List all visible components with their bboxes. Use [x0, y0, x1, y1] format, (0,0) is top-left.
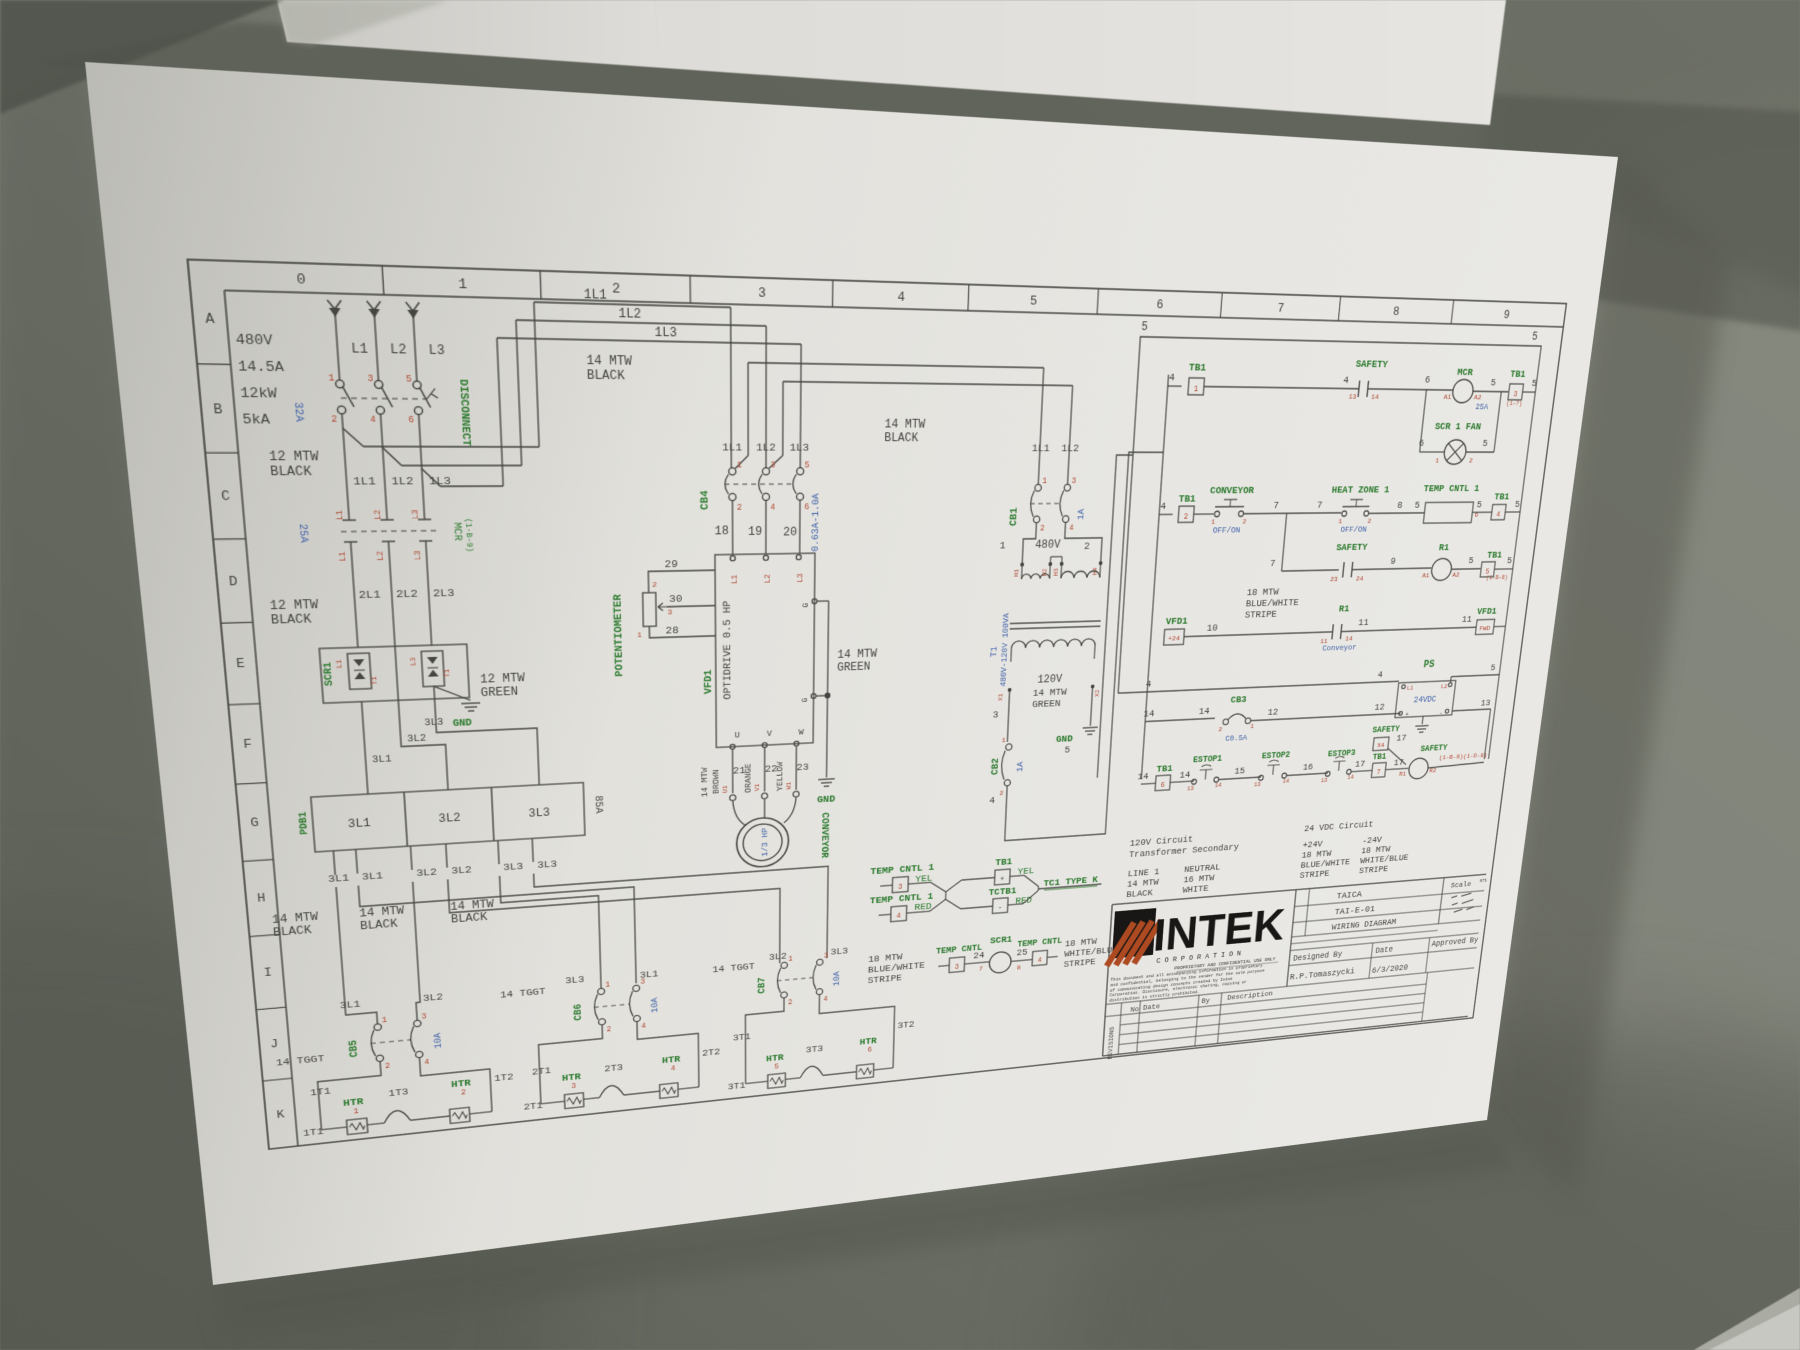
- svg-text:22: 22: [765, 764, 777, 776]
- svg-text:VFD1: VFD1: [703, 669, 715, 694]
- svg-text:1: 1: [605, 981, 610, 989]
- svg-text:1T1: 1T1: [310, 1086, 331, 1099]
- svg-text:CONVEYOR: CONVEYOR: [1210, 486, 1255, 497]
- svg-text:3L1: 3L1: [362, 871, 384, 884]
- svg-text:1L2: 1L2: [756, 442, 776, 454]
- svg-text:18: 18: [715, 524, 729, 538]
- svg-text:10A: 10A: [649, 997, 660, 1013]
- svg-text:25A: 25A: [1475, 402, 1489, 412]
- svg-text:5: 5: [1468, 556, 1474, 566]
- svg-text:30: 30: [669, 593, 682, 605]
- svg-text:F: F: [243, 738, 253, 752]
- svg-text:T1: T1: [370, 676, 380, 685]
- svg-text:2: 2: [788, 999, 792, 1007]
- svg-text:E: E: [236, 657, 246, 671]
- svg-text:SAFETY: SAFETY: [1420, 743, 1448, 754]
- svg-text:480V: 480V: [235, 332, 273, 349]
- svg-text:(1-B-8)(1-D-8): (1-B-8)(1-D-8): [1438, 752, 1487, 762]
- svg-text:24VDC: 24VDC: [1413, 695, 1437, 705]
- svg-text:6: 6: [408, 416, 414, 426]
- svg-text:3L2: 3L2: [769, 951, 787, 963]
- svg-text:TB1: TB1: [1510, 369, 1526, 380]
- svg-text:4: 4: [1160, 501, 1166, 512]
- svg-text:TEMP CNTL 1: TEMP CNTL 1: [1423, 484, 1480, 495]
- svg-text:5: 5: [805, 461, 810, 470]
- svg-text:3: 3: [367, 374, 373, 384]
- svg-text:6: 6: [1418, 438, 1424, 449]
- svg-text:1L2: 1L2: [391, 476, 414, 489]
- svg-text:By: By: [1201, 997, 1210, 1006]
- svg-text:0: 0: [296, 272, 306, 289]
- svg-text:H: H: [257, 892, 266, 905]
- svg-text:2T2: 2T2: [702, 1047, 720, 1059]
- svg-text:2T1: 2T1: [532, 1066, 551, 1078]
- svg-text:(1-?): (1-?): [1506, 400, 1523, 408]
- svg-text:12: 12: [1267, 707, 1278, 718]
- svg-text:STRIPE: STRIPE: [868, 973, 903, 986]
- svg-text:L2: L2: [1441, 683, 1448, 690]
- svg-text:1A: 1A: [1015, 761, 1025, 772]
- svg-text:3: 3: [898, 883, 903, 891]
- svg-text:85A: 85A: [592, 795, 605, 814]
- svg-text:3: 3: [571, 1083, 576, 1091]
- svg-text:2: 2: [1242, 518, 1247, 526]
- svg-text:H3: H3: [1052, 568, 1060, 576]
- svg-text:TB1: TB1: [1178, 494, 1196, 505]
- svg-text:CB6: CB6: [572, 1003, 584, 1021]
- svg-text:H1: H1: [1013, 569, 1021, 577]
- svg-text:3L2: 3L2: [451, 865, 472, 878]
- svg-text:L2: L2: [764, 574, 773, 584]
- svg-text:13: 13: [1254, 781, 1261, 788]
- svg-text:A1: A1: [1422, 572, 1430, 580]
- svg-text:19: 19: [748, 525, 762, 539]
- svg-text:4: 4: [1496, 511, 1501, 519]
- svg-text:TCTB1: TCTB1: [988, 886, 1016, 898]
- svg-text:4: 4: [370, 415, 376, 425]
- svg-text:7: 7: [1273, 501, 1279, 512]
- svg-text:STRIPE: STRIPE: [1244, 609, 1277, 620]
- svg-text:1: 1: [1435, 457, 1440, 465]
- svg-text:STRIPE: STRIPE: [1063, 957, 1096, 970]
- svg-text:14 MTW: 14 MTW: [1127, 878, 1160, 890]
- svg-text:9: 9: [1390, 556, 1396, 567]
- svg-text:1L1: 1L1: [584, 287, 607, 303]
- svg-text:7: 7: [1269, 559, 1275, 570]
- svg-text:5: 5: [406, 375, 412, 385]
- svg-text:1: 1: [328, 374, 334, 384]
- svg-text:5: 5: [1414, 500, 1420, 511]
- svg-text:3T3: 3T3: [806, 1044, 823, 1056]
- svg-text:32A: 32A: [291, 402, 306, 422]
- svg-text:3L2: 3L2: [407, 733, 427, 745]
- svg-text:9: 9: [1503, 309, 1511, 322]
- svg-text:TB1: TB1: [1156, 764, 1173, 775]
- svg-text:OFF/ON: OFF/ON: [1212, 526, 1240, 536]
- svg-text:3L1: 3L1: [339, 999, 360, 1012]
- svg-text:+: +: [1405, 711, 1409, 719]
- svg-text:4: 4: [1343, 375, 1349, 386]
- svg-text:G: G: [802, 603, 811, 608]
- svg-text:4: 4: [823, 996, 827, 1004]
- svg-text:L1: L1: [351, 341, 368, 357]
- svg-text:3: 3: [1513, 391, 1518, 399]
- svg-text:R1: R1: [1338, 604, 1349, 615]
- svg-text:(1-B-9): (1-B-9): [463, 518, 475, 552]
- svg-text:Date: Date: [1375, 945, 1393, 955]
- svg-text:1L3: 1L3: [655, 325, 678, 340]
- svg-text:1L3: 1L3: [790, 442, 809, 454]
- svg-text:13: 13: [1348, 393, 1357, 402]
- svg-text:2: 2: [1184, 513, 1189, 521]
- svg-text:3L3: 3L3: [424, 716, 444, 728]
- svg-text:X1: X1: [997, 693, 1005, 701]
- svg-text:PS: PS: [1423, 659, 1435, 671]
- svg-text:L1: L1: [338, 551, 349, 561]
- svg-text:-: -: [1439, 710, 1443, 718]
- svg-text:13: 13: [1187, 785, 1194, 792]
- svg-text:3T1: 3T1: [733, 1032, 751, 1044]
- svg-text:PDB1: PDB1: [296, 811, 310, 835]
- svg-text:14 MTW: 14 MTW: [700, 767, 711, 798]
- svg-text:G: G: [801, 698, 810, 703]
- svg-text:1: 1: [1001, 737, 1005, 745]
- svg-text:L1: L1: [334, 659, 344, 668]
- svg-text:1L2: 1L2: [1061, 443, 1079, 455]
- svg-text:1L3: 1L3: [429, 475, 451, 488]
- svg-text:14 MTW: 14 MTW: [837, 647, 877, 661]
- svg-text:14 TGGT: 14 TGGT: [276, 1054, 326, 1069]
- svg-text:GND: GND: [817, 794, 836, 806]
- svg-text:3L2: 3L2: [416, 867, 437, 880]
- svg-text:L3: L3: [408, 657, 418, 666]
- svg-text:R.P.Tomaszycki: R.P.Tomaszycki: [1289, 967, 1355, 982]
- svg-text:1/3 HP: 1/3 HP: [760, 828, 770, 857]
- svg-text:10A: 10A: [432, 1032, 444, 1049]
- svg-text:STRIPE: STRIPE: [1299, 869, 1330, 881]
- svg-text:BLACK: BLACK: [587, 368, 626, 383]
- svg-text:ESTOP1: ESTOP1: [1193, 754, 1223, 765]
- svg-text:11: 11: [1461, 615, 1472, 625]
- svg-text:14: 14: [1215, 782, 1222, 789]
- svg-text:2T1: 2T1: [524, 1101, 543, 1113]
- svg-text:VFD1: VFD1: [1165, 616, 1188, 627]
- svg-text:5: 5: [1506, 556, 1512, 566]
- svg-text:TB1: TB1: [1487, 550, 1503, 561]
- svg-text:W1: W1: [785, 781, 793, 789]
- svg-text:TB1: TB1: [1494, 492, 1510, 503]
- svg-text:1: 1: [737, 461, 742, 470]
- svg-text:3L1: 3L1: [347, 817, 371, 831]
- svg-text:10A: 10A: [831, 971, 841, 987]
- svg-text:2T3: 2T3: [604, 1063, 623, 1075]
- svg-text:SAFETY: SAFETY: [1336, 542, 1368, 553]
- svg-text:3L1: 3L1: [372, 753, 392, 765]
- svg-text:R1: R1: [1399, 771, 1407, 779]
- svg-text:L3: L3: [411, 509, 422, 519]
- svg-text:X4: X4: [1377, 742, 1385, 750]
- svg-text:12kW: 12kW: [240, 386, 278, 402]
- svg-text:SCR1: SCR1: [990, 935, 1012, 947]
- svg-text:TB1: TB1: [995, 857, 1012, 868]
- svg-text:5: 5: [774, 1063, 778, 1071]
- svg-text:2L2: 2L2: [396, 588, 418, 601]
- svg-text:5: 5: [1514, 500, 1520, 510]
- svg-text:L1: L1: [1407, 685, 1414, 692]
- svg-text:14: 14: [1143, 709, 1155, 720]
- svg-text:8: 8: [1017, 964, 1021, 972]
- svg-text:STRIPE: STRIPE: [1359, 865, 1389, 877]
- svg-text:1: 1: [382, 1016, 388, 1025]
- svg-text:U: U: [735, 730, 740, 740]
- svg-text:NTS: NTS: [1479, 879, 1486, 884]
- svg-text:2: 2: [606, 1026, 611, 1034]
- svg-text:1: 1: [458, 277, 467, 293]
- svg-text:21: 21: [733, 765, 746, 777]
- svg-text:3: 3: [758, 286, 766, 302]
- svg-text:A2: A2: [1452, 571, 1460, 579]
- svg-text:CB7: CB7: [757, 977, 768, 994]
- svg-text:3T1: 3T1: [728, 1081, 746, 1093]
- svg-text:A1: A1: [1443, 393, 1451, 401]
- svg-text:CB5: CB5: [347, 1039, 361, 1057]
- svg-text:Approved By: Approved By: [1431, 936, 1479, 949]
- svg-text:L2: L2: [373, 510, 384, 520]
- svg-text:1T3: 1T3: [388, 1087, 409, 1100]
- svg-text:+24: +24: [1168, 635, 1180, 643]
- svg-text:L3: L3: [428, 343, 445, 358]
- svg-text:TB1: TB1: [1189, 362, 1207, 374]
- svg-text:24 VDC Circuit: 24 VDC Circuit: [1304, 820, 1374, 834]
- svg-text:G: G: [250, 816, 259, 830]
- svg-text:3L3: 3L3: [528, 806, 550, 820]
- svg-text:4: 4: [1377, 670, 1383, 680]
- svg-text:23: 23: [1330, 576, 1338, 584]
- svg-text:17: 17: [1355, 759, 1366, 769]
- svg-text:W: W: [799, 727, 805, 737]
- svg-text:5kA: 5kA: [242, 412, 271, 428]
- svg-text:2: 2: [331, 415, 337, 425]
- svg-text:B: B: [213, 402, 224, 417]
- svg-text:2: 2: [1218, 726, 1222, 734]
- svg-text:3: 3: [421, 1013, 427, 1021]
- svg-text:1: 1: [1250, 723, 1254, 731]
- svg-text:(1-B-8): (1-B-8): [1486, 574, 1509, 582]
- svg-text:L1: L1: [335, 510, 346, 520]
- svg-text:2: 2: [999, 790, 1003, 798]
- svg-text:4: 4: [770, 503, 775, 512]
- svg-text:2: 2: [1367, 518, 1372, 526]
- svg-text:13: 13: [1320, 777, 1327, 784]
- svg-text:J: J: [270, 1038, 279, 1051]
- svg-text:GREEN: GREEN: [480, 685, 518, 700]
- svg-text:6: 6: [1160, 782, 1165, 790]
- svg-text:25: 25: [1016, 948, 1027, 959]
- svg-text:BLACK: BLACK: [270, 612, 312, 627]
- svg-text:DISCONNECT: DISCONNECT: [456, 379, 472, 446]
- svg-text:28: 28: [666, 625, 679, 637]
- svg-text:4: 4: [1169, 372, 1176, 384]
- svg-text:2L1: 2L1: [358, 589, 381, 602]
- svg-text:CB1: CB1: [1008, 508, 1020, 527]
- svg-text:6: 6: [1156, 298, 1164, 312]
- svg-text:C: C: [221, 489, 231, 504]
- svg-text:24: 24: [973, 951, 984, 962]
- svg-text:4: 4: [896, 913, 901, 921]
- svg-text:120V: 120V: [1037, 673, 1063, 686]
- svg-text:14.5A: 14.5A: [237, 359, 284, 376]
- svg-text:7: 7: [1277, 302, 1285, 316]
- svg-text:L2: L2: [376, 551, 387, 561]
- svg-text:SCR 1 FAN: SCR 1 FAN: [1434, 422, 1481, 433]
- svg-text:C0.5A: C0.5A: [1225, 733, 1248, 743]
- svg-text:BLUE/WHITE: BLUE/WHITE: [1245, 598, 1299, 610]
- svg-text:BLACK: BLACK: [270, 464, 313, 479]
- svg-text:14: 14: [1282, 778, 1289, 785]
- svg-text:7: 7: [1376, 769, 1380, 777]
- svg-text:12: 12: [1374, 703, 1385, 713]
- svg-text:7: 7: [979, 965, 983, 973]
- svg-text:3: 3: [770, 461, 775, 470]
- svg-text:1T1: 1T1: [303, 1127, 324, 1140]
- svg-text:14 MTW: 14 MTW: [884, 418, 925, 432]
- svg-text:1A: 1A: [1076, 509, 1087, 520]
- svg-text:3: 3: [640, 978, 645, 986]
- svg-text:CB4: CB4: [699, 490, 712, 510]
- svg-text:17: 17: [1393, 758, 1404, 768]
- svg-text:14: 14: [1347, 774, 1354, 781]
- svg-text:2: 2: [461, 1089, 466, 1097]
- svg-text:3L3: 3L3: [537, 859, 557, 871]
- svg-text:7: 7: [1316, 500, 1322, 511]
- svg-text:2: 2: [612, 282, 621, 298]
- svg-text:TEMP CNTL: TEMP CNTL: [1017, 936, 1062, 949]
- svg-text:5: 5: [1490, 378, 1496, 389]
- svg-text:1L2: 1L2: [618, 306, 641, 321]
- svg-text:2: 2: [652, 581, 657, 590]
- svg-text:1: 1: [1042, 477, 1047, 486]
- svg-text:3T2: 3T2: [897, 1020, 914, 1031]
- svg-text:Conveyor: Conveyor: [1322, 643, 1357, 653]
- svg-text:3L3: 3L3: [503, 861, 523, 873]
- svg-text:D: D: [228, 575, 238, 590]
- svg-text:14 MTW: 14 MTW: [1032, 687, 1067, 699]
- svg-text:I: I: [263, 966, 272, 979]
- svg-text:14: 14: [1179, 770, 1190, 781]
- svg-text:4: 4: [897, 290, 905, 305]
- svg-text:U1: U1: [721, 785, 729, 793]
- svg-text:12 MTW: 12 MTW: [269, 598, 319, 613]
- svg-text:14: 14: [1371, 393, 1380, 401]
- svg-text:L1: L1: [731, 575, 740, 585]
- svg-text:ESTOP2: ESTOP2: [1262, 750, 1291, 761]
- svg-text:4: 4: [641, 1023, 646, 1031]
- svg-text:1T2: 1T2: [494, 1072, 514, 1084]
- svg-text:3L2: 3L2: [423, 992, 444, 1005]
- svg-text:6: 6: [1424, 375, 1430, 386]
- svg-text:2: 2: [385, 1062, 391, 1070]
- svg-text:6: 6: [804, 503, 809, 512]
- svg-text:480V-120V 100VA: 480V-120V 100VA: [999, 612, 1012, 686]
- svg-text:3: 3: [992, 710, 998, 721]
- svg-text:2: 2: [1469, 457, 1474, 465]
- svg-text:3: 3: [955, 964, 959, 972]
- svg-text:V1: V1: [753, 783, 761, 791]
- svg-text:ESTOP3: ESTOP3: [1328, 748, 1357, 759]
- svg-text:CB2: CB2: [990, 758, 1001, 776]
- svg-text:V: V: [767, 729, 773, 739]
- svg-text:SCR1: SCR1: [321, 662, 336, 687]
- svg-text:1: 1: [353, 1108, 359, 1116]
- svg-text:5: 5: [1482, 439, 1488, 450]
- svg-text:12 MTW: 12 MTW: [480, 671, 526, 686]
- svg-text:+: +: [1000, 875, 1005, 884]
- svg-text:3: 3: [668, 608, 673, 617]
- svg-text:2L3: 2L3: [433, 588, 455, 601]
- svg-text:480V: 480V: [1035, 538, 1061, 551]
- svg-text:16 MTW: 16 MTW: [1183, 873, 1215, 885]
- svg-text:4: 4: [671, 1065, 676, 1073]
- svg-text:R2: R2: [1429, 767, 1437, 775]
- svg-text:3L3: 3L3: [831, 946, 849, 958]
- svg-text:BLACK: BLACK: [451, 911, 488, 926]
- svg-text:X2: X2: [1094, 689, 1102, 697]
- svg-text:TB1: TB1: [1372, 752, 1387, 762]
- svg-text:3L1: 3L1: [328, 873, 350, 886]
- svg-text:K: K: [276, 1109, 285, 1122]
- svg-text:14: 14: [1198, 706, 1209, 717]
- svg-text:POTENTIOMETER: POTENTIOMETER: [612, 594, 626, 677]
- svg-text:3L2: 3L2: [438, 811, 461, 825]
- svg-text:14 TGGT: 14 TGGT: [500, 987, 546, 1002]
- svg-text:4: 4: [1037, 957, 1041, 965]
- svg-text:6/3/2020: 6/3/2020: [1371, 963, 1408, 976]
- svg-text:CB3: CB3: [1230, 695, 1247, 706]
- svg-text:OPTIDRIVE 0.5 HP: OPTIDRIVE 0.5 HP: [722, 600, 734, 699]
- svg-text:18 MTW: 18 MTW: [1246, 587, 1279, 598]
- svg-text:Scale: Scale: [1450, 880, 1471, 890]
- svg-text:8: 8: [1392, 306, 1400, 320]
- svg-text:17: 17: [1396, 733, 1407, 743]
- svg-text:A: A: [205, 311, 216, 327]
- svg-text:BLACK: BLACK: [273, 924, 313, 940]
- svg-text:5: 5: [1030, 294, 1038, 309]
- svg-text:6: 6: [868, 1046, 872, 1054]
- svg-text:1L1: 1L1: [1032, 443, 1050, 455]
- svg-text:10: 10: [1206, 623, 1218, 634]
- svg-text:T1: T1: [442, 669, 451, 678]
- svg-text:1: 1: [999, 541, 1005, 552]
- svg-text:12 MTW: 12 MTW: [268, 449, 319, 464]
- svg-text:4: 4: [989, 796, 995, 807]
- svg-text:29: 29: [665, 559, 678, 571]
- svg-text:VFD1: VFD1: [1477, 607, 1498, 618]
- svg-text:TC1 TYPE K: TC1 TYPE K: [1043, 875, 1098, 889]
- svg-text:4: 4: [1069, 524, 1074, 533]
- svg-text:HEAT ZONE 1: HEAT ZONE 1: [1331, 485, 1390, 496]
- svg-text:3: 3: [824, 952, 828, 960]
- svg-text:24: 24: [1355, 575, 1363, 583]
- svg-text:2: 2: [737, 504, 742, 513]
- svg-text:5: 5: [1531, 331, 1538, 344]
- svg-text:GREEN: GREEN: [837, 660, 870, 674]
- svg-text:R1: R1: [1438, 543, 1449, 554]
- svg-text:5: 5: [1490, 663, 1496, 673]
- svg-text:13: 13: [1480, 698, 1491, 708]
- svg-text:L3: L3: [796, 573, 805, 583]
- svg-text:25A: 25A: [296, 524, 311, 543]
- svg-text:15: 15: [1234, 766, 1245, 777]
